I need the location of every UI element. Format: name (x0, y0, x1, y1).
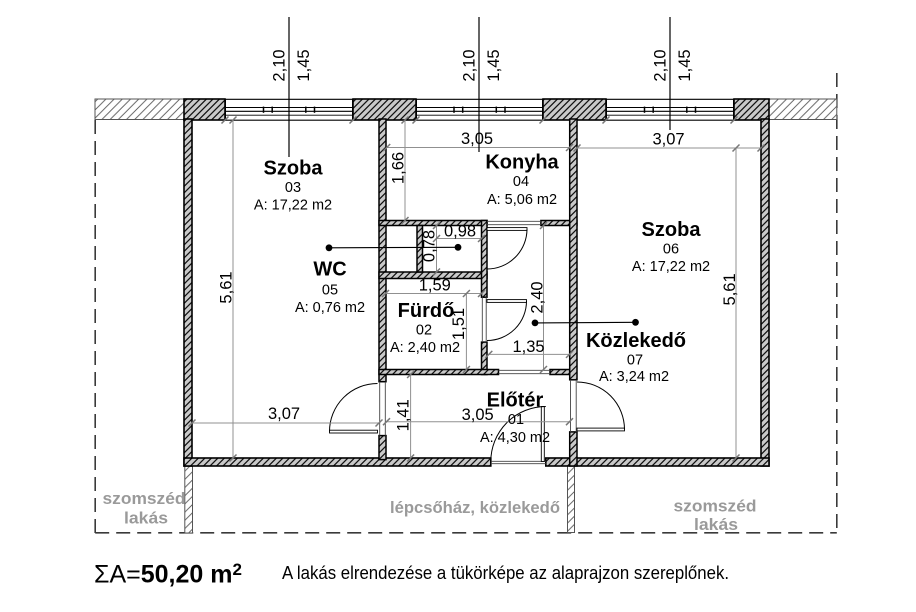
svg-text:5,61: 5,61 (721, 273, 739, 305)
svg-text:01: 01 (508, 412, 524, 428)
svg-text:5,61: 5,61 (218, 271, 236, 303)
svg-text:02: 02 (416, 323, 432, 339)
svg-text:1,41: 1,41 (395, 399, 413, 431)
svg-text:szomszéd: szomszéd (103, 489, 186, 508)
svg-text:2,40: 2,40 (529, 281, 547, 313)
svg-text:3,05: 3,05 (462, 406, 494, 424)
svg-text:3,07: 3,07 (652, 131, 684, 149)
svg-text:Szoba: Szoba (642, 219, 702, 241)
svg-text:A lakás elrendezése a tükörkép: A lakás elrendezése a tükörképe az alapr… (282, 562, 729, 583)
svg-text:Fürdő: Fürdő (398, 300, 455, 322)
svg-text:Szoba: Szoba (264, 158, 324, 180)
svg-text:0,78: 0,78 (421, 230, 439, 262)
svg-text:A: 3,24 m2: A: 3,24 m2 (599, 369, 669, 385)
svg-text:ΣA=50,20 m2: ΣA=50,20 m2 (94, 560, 242, 589)
svg-text:06: 06 (663, 242, 679, 258)
svg-text:3,05: 3,05 (461, 130, 493, 148)
svg-text:lakás: lakás (124, 509, 168, 528)
svg-text:1,45: 1,45 (295, 49, 313, 81)
svg-text:1,59: 1,59 (419, 277, 451, 295)
svg-text:Konyha: Konyha (485, 152, 559, 174)
svg-text:Közlekedő: Közlekedő (586, 330, 686, 352)
svg-text:A: 4,30 m2: A: 4,30 m2 (480, 430, 550, 446)
svg-text:WC: WC (313, 258, 346, 280)
svg-text:1,66: 1,66 (390, 152, 408, 184)
svg-text:A: 0,76 m2: A: 0,76 m2 (295, 300, 365, 316)
svg-text:2,10: 2,10 (271, 49, 289, 81)
svg-text:Előtér: Előtér (487, 390, 544, 412)
svg-text:1,45: 1,45 (676, 49, 694, 81)
svg-text:A: 5,06 m2: A: 5,06 m2 (487, 192, 557, 208)
svg-text:lépcsőház, közlekedő: lépcsőház, közlekedő (390, 499, 560, 517)
svg-text:3,07: 3,07 (268, 405, 300, 423)
svg-text:A: 17,22 m2: A: 17,22 m2 (254, 198, 332, 214)
svg-text:04: 04 (513, 174, 529, 190)
svg-text:07: 07 (627, 352, 643, 368)
svg-text:lakás: lakás (694, 515, 738, 534)
svg-text:A: 2,40 m2: A: 2,40 m2 (390, 340, 460, 356)
svg-text:szomszéd: szomszéd (674, 497, 757, 516)
svg-text:2,10: 2,10 (652, 49, 670, 81)
svg-text:A: 17,22 m2: A: 17,22 m2 (632, 259, 710, 275)
svg-text:1,51: 1,51 (450, 308, 468, 340)
svg-text:0,98: 0,98 (444, 223, 476, 241)
svg-text:1,45: 1,45 (485, 49, 503, 81)
svg-text:2,10: 2,10 (461, 49, 479, 81)
svg-text:03: 03 (285, 180, 301, 196)
svg-text:1,35: 1,35 (512, 338, 544, 356)
svg-text:05: 05 (322, 282, 338, 298)
